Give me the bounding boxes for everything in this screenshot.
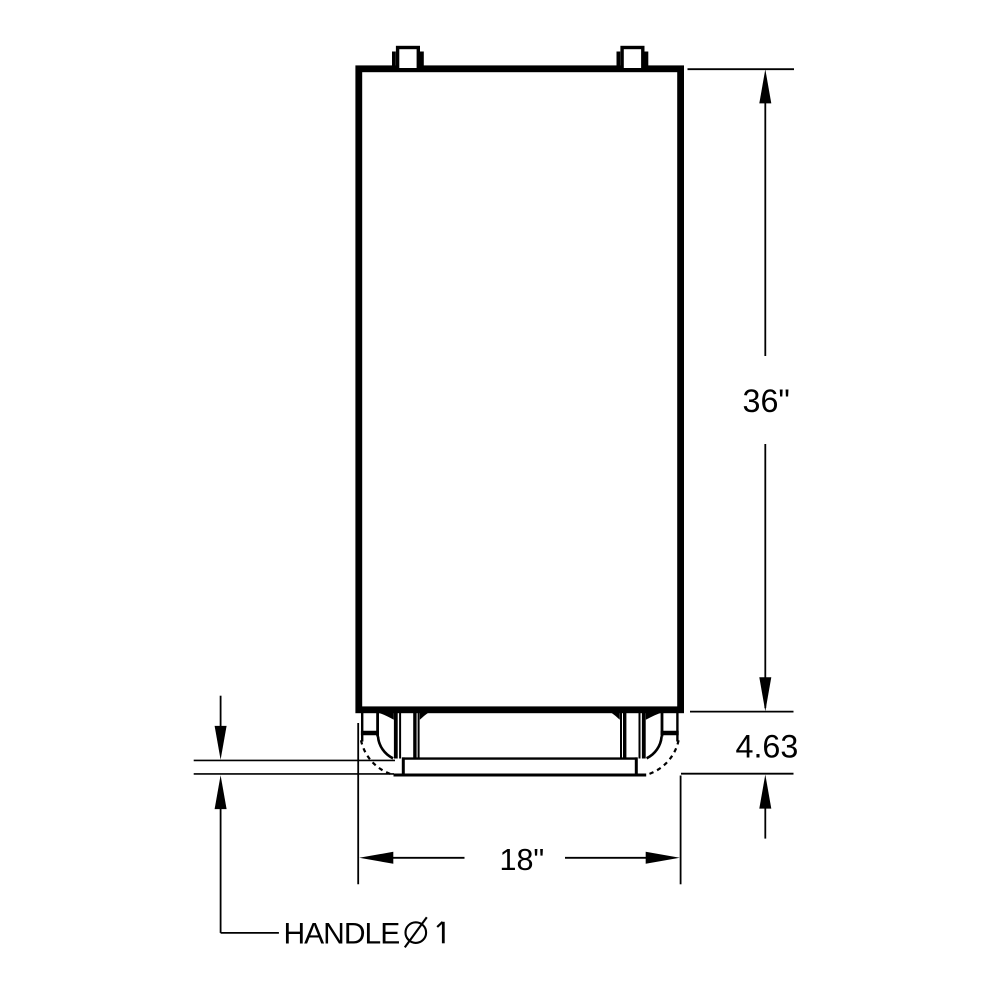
svg-text:36": 36" bbox=[743, 383, 790, 419]
svg-text:HANDLE: HANDLE bbox=[284, 917, 400, 950]
svg-text:4.63: 4.63 bbox=[736, 728, 799, 764]
svg-text:18": 18" bbox=[500, 843, 545, 877]
